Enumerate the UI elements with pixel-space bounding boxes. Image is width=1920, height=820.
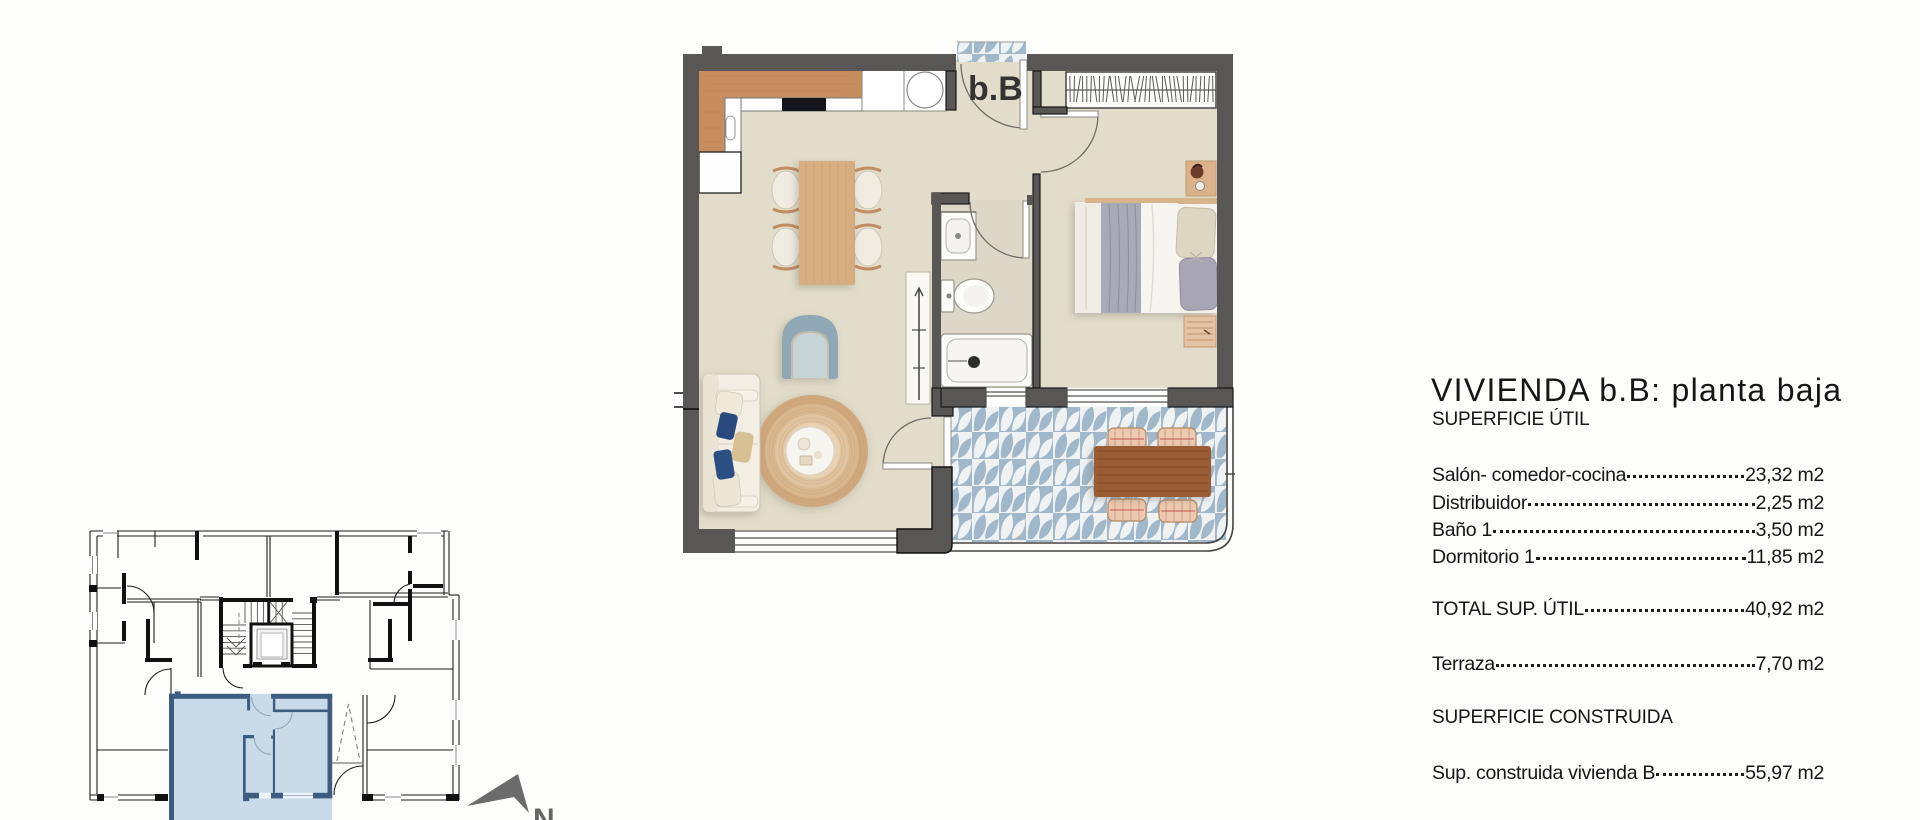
svg-text:b.B: b.B (968, 70, 1023, 108)
svg-text:N: N (533, 803, 555, 820)
